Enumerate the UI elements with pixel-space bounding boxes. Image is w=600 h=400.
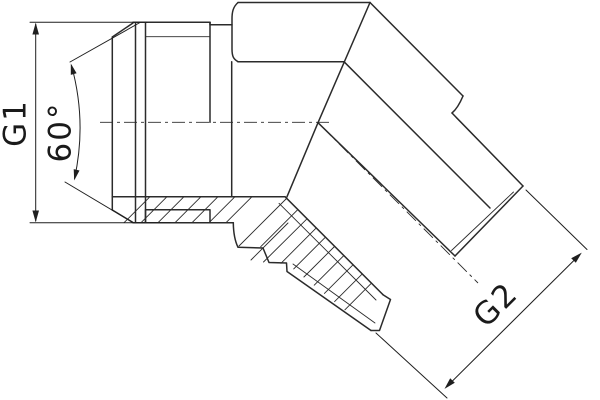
thread-tick: [314, 256, 344, 286]
angle-arrow-top: [71, 64, 77, 75]
port2-upper-edge-inner: [456, 118, 521, 185]
g2-extension-lower: [376, 333, 447, 398]
section-hatch: [239, 198, 287, 246]
port2-end-face: [455, 186, 523, 256]
thread-tick: [261, 210, 298, 247]
left-port-top-chamfer: [112, 23, 133, 37]
elbow-corner-fillet: [452, 96, 463, 113]
centerlines: [100, 122, 478, 283]
angle-ray-bottom: [65, 182, 133, 223]
spacer-step-top: [210, 22, 232, 24]
fitting-technical-drawing: G1 60° G2: [0, 0, 600, 400]
port2-lower-edge: [318, 123, 455, 256]
stud-lower-crest-and-step: [233, 223, 371, 331]
g2-label: G2: [466, 275, 525, 334]
thread-tick: [324, 265, 353, 294]
g1-arrow-up: [32, 23, 39, 35]
g1-dimension: G1: [0, 22, 170, 222]
miter-edge-lower: [287, 123, 318, 197]
section-hatch: [226, 197, 252, 223]
hex-flat-line-45: [344, 62, 490, 208]
stud-root-lower: [293, 264, 375, 323]
seal-washer-section: [146, 210, 211, 223]
angle-ray-top: [70, 23, 140, 63]
g2-dimension-line: [449, 257, 577, 384]
g2-dimension: G2: [376, 190, 587, 398]
miter-edge-upper: [318, 3, 370, 123]
thread-tick: [304, 247, 335, 278]
thread-tick: [335, 274, 363, 302]
angle-arrow-bottom: [74, 169, 80, 180]
g1-label: G1: [0, 99, 34, 147]
stud-root-upper: [279, 203, 376, 300]
section-hatch: [209, 197, 235, 223]
thread-hatching: [124, 197, 371, 310]
g1-arrow-down: [32, 211, 39, 223]
technical-drawing-page: G1 60° G2: [0, 0, 600, 400]
thread-tick: [294, 237, 326, 269]
elbow-outer-edge-45: [370, 3, 463, 97]
stud-tip: [371, 295, 391, 331]
g2-extension-upper: [526, 190, 587, 250]
angle-label: 60°: [43, 102, 79, 163]
hex-left-edge: [232, 3, 238, 62]
thread-tick: [281, 228, 316, 263]
